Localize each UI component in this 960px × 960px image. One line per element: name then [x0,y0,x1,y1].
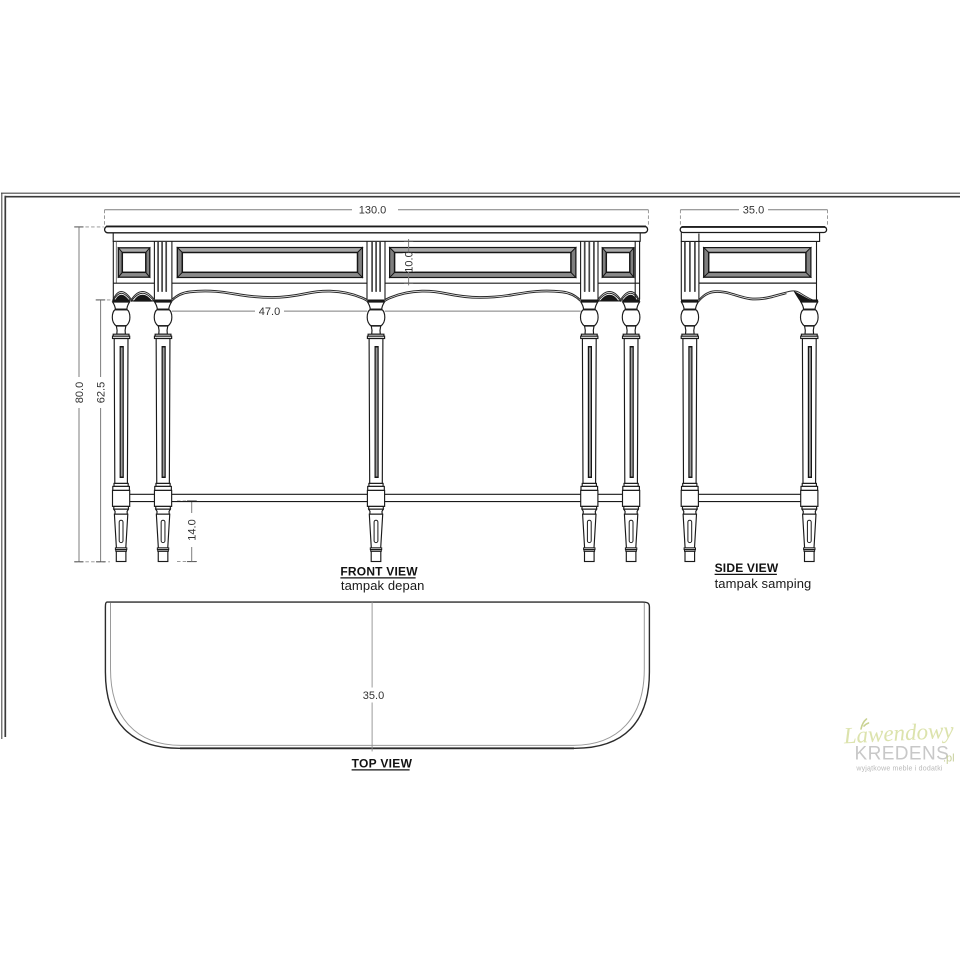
svg-text:10.0: 10.0 [403,251,415,272]
svg-text:tampak samping: tampak samping [715,576,812,591]
svg-text:130.0: 130.0 [359,205,387,217]
svg-text:14.0: 14.0 [187,519,199,540]
svg-text:FRONT VIEW: FRONT VIEW [340,565,418,579]
svg-text:35.0: 35.0 [363,690,384,702]
svg-text:62.5: 62.5 [95,382,107,403]
svg-text:wyjątkowe meble i dodatki: wyjątkowe meble i dodatki [855,766,943,773]
svg-text:47.0: 47.0 [259,306,280,318]
svg-text:tampak depan: tampak depan [341,578,425,593]
svg-text:80.0: 80.0 [74,382,86,403]
svg-text:.pl: .pl [943,753,955,765]
svg-text:KREDENS: KREDENS [855,744,950,765]
svg-text:35.0: 35.0 [743,205,764,217]
svg-text:SIDE VIEW: SIDE VIEW [715,561,779,575]
svg-text:TOP VIEW: TOP VIEW [352,756,413,770]
